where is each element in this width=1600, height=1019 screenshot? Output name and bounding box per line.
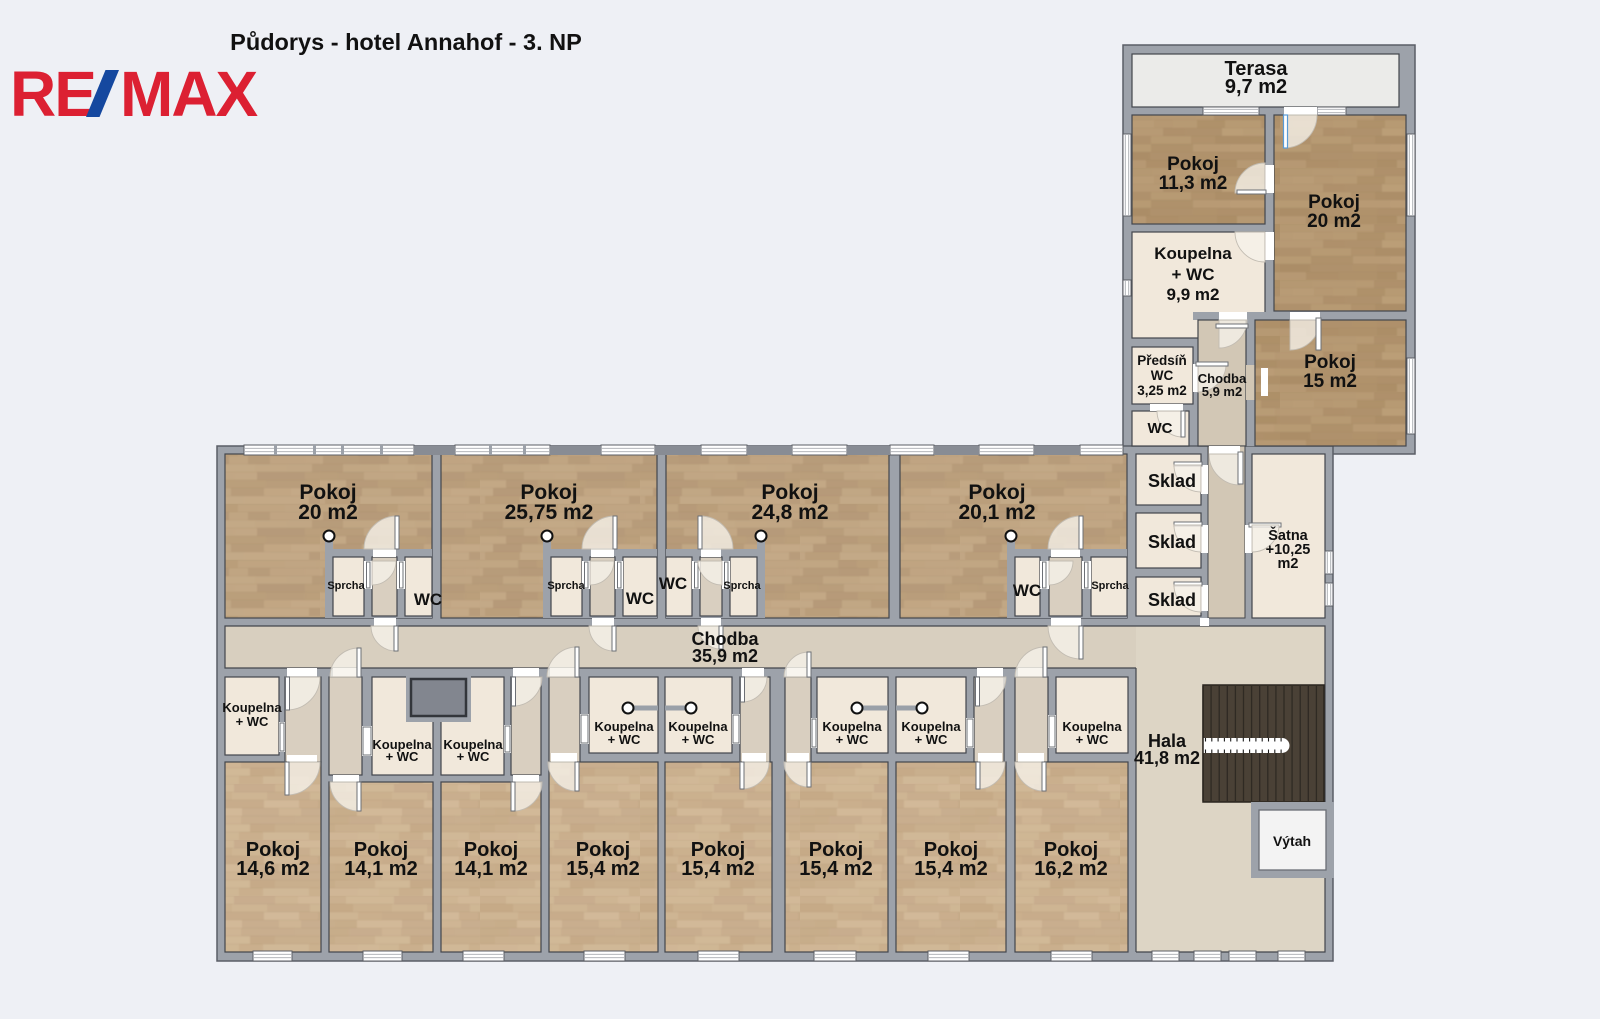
svg-text:Sklad: Sklad	[1148, 590, 1196, 610]
svg-text:+ WC: + WC	[457, 749, 490, 764]
svg-text:11,3 m2: 11,3 m2	[1159, 173, 1228, 194]
svg-text:Sprcha: Sprcha	[723, 580, 761, 592]
svg-text:+ WC: + WC	[236, 714, 269, 729]
svg-text:15 m2: 15 m2	[1303, 371, 1357, 392]
svg-text:25,75 m2: 25,75 m2	[505, 501, 594, 524]
svg-text:MAX: MAX	[120, 58, 259, 130]
svg-text:Pokoj: Pokoj	[1167, 154, 1219, 175]
svg-text:Sklad: Sklad	[1148, 471, 1196, 491]
svg-text:3,25 m2: 3,25 m2	[1137, 383, 1187, 398]
svg-text:WC: WC	[414, 590, 442, 609]
svg-text:WC: WC	[1151, 368, 1174, 383]
svg-text:15,4 m2: 15,4 m2	[914, 858, 987, 880]
svg-text:9,9 m2: 9,9 m2	[1167, 285, 1220, 304]
svg-text:Sprcha: Sprcha	[1091, 580, 1129, 592]
svg-text:20 m2: 20 m2	[1307, 211, 1361, 232]
svg-text:9,7 m2: 9,7 m2	[1225, 76, 1287, 98]
svg-text:14,1 m2: 14,1 m2	[454, 858, 527, 880]
svg-text:35,9 m2: 35,9 m2	[692, 646, 758, 666]
svg-text:15,4 m2: 15,4 m2	[681, 858, 754, 880]
svg-text:+ WC: + WC	[836, 732, 869, 747]
svg-text:15,4 m2: 15,4 m2	[799, 858, 872, 880]
svg-text:WC: WC	[626, 589, 654, 608]
svg-text:Koupelna: Koupelna	[1154, 244, 1232, 263]
svg-text:WC: WC	[1148, 420, 1173, 437]
svg-text:WC: WC	[659, 574, 687, 593]
svg-text:Pokoj: Pokoj	[1308, 192, 1360, 213]
svg-text:15,4 m2: 15,4 m2	[566, 858, 639, 880]
svg-text:+ WC: + WC	[915, 732, 948, 747]
svg-text:5,9 m2: 5,9 m2	[1202, 384, 1242, 399]
svg-text:+ WC: + WC	[1172, 265, 1215, 284]
svg-text:+ WC: + WC	[1076, 732, 1109, 747]
svg-text:Pokoj: Pokoj	[1304, 352, 1356, 373]
svg-text:Předsíň: Předsíň	[1137, 353, 1187, 368]
svg-text:Sprcha: Sprcha	[547, 580, 585, 592]
svg-text:16,2 m2: 16,2 m2	[1034, 858, 1107, 880]
svg-text:14,1 m2: 14,1 m2	[344, 858, 417, 880]
svg-text:+ WC: + WC	[386, 749, 419, 764]
svg-text:Půdorys - hotel Annahof - 3. N: Půdorys - hotel Annahof - 3. NP	[230, 29, 582, 55]
svg-text:Výtah: Výtah	[1273, 833, 1311, 849]
svg-text:Koupelna: Koupelna	[222, 700, 282, 715]
svg-text:+ WC: + WC	[682, 732, 715, 747]
svg-text:41,8 m2: 41,8 m2	[1134, 748, 1200, 768]
svg-text:14,6 m2: 14,6 m2	[236, 858, 309, 880]
svg-text:+ WC: + WC	[608, 732, 641, 747]
svg-text:RE: RE	[10, 58, 95, 130]
svg-text:WC: WC	[1013, 581, 1041, 600]
svg-text:Sklad: Sklad	[1148, 532, 1196, 552]
svg-text:20,1 m2: 20,1 m2	[958, 501, 1035, 524]
svg-text:24,8 m2: 24,8 m2	[751, 501, 828, 524]
svg-text:m2: m2	[1278, 556, 1299, 572]
svg-text:Sprcha: Sprcha	[327, 580, 365, 592]
svg-text:20 m2: 20 m2	[298, 501, 358, 524]
